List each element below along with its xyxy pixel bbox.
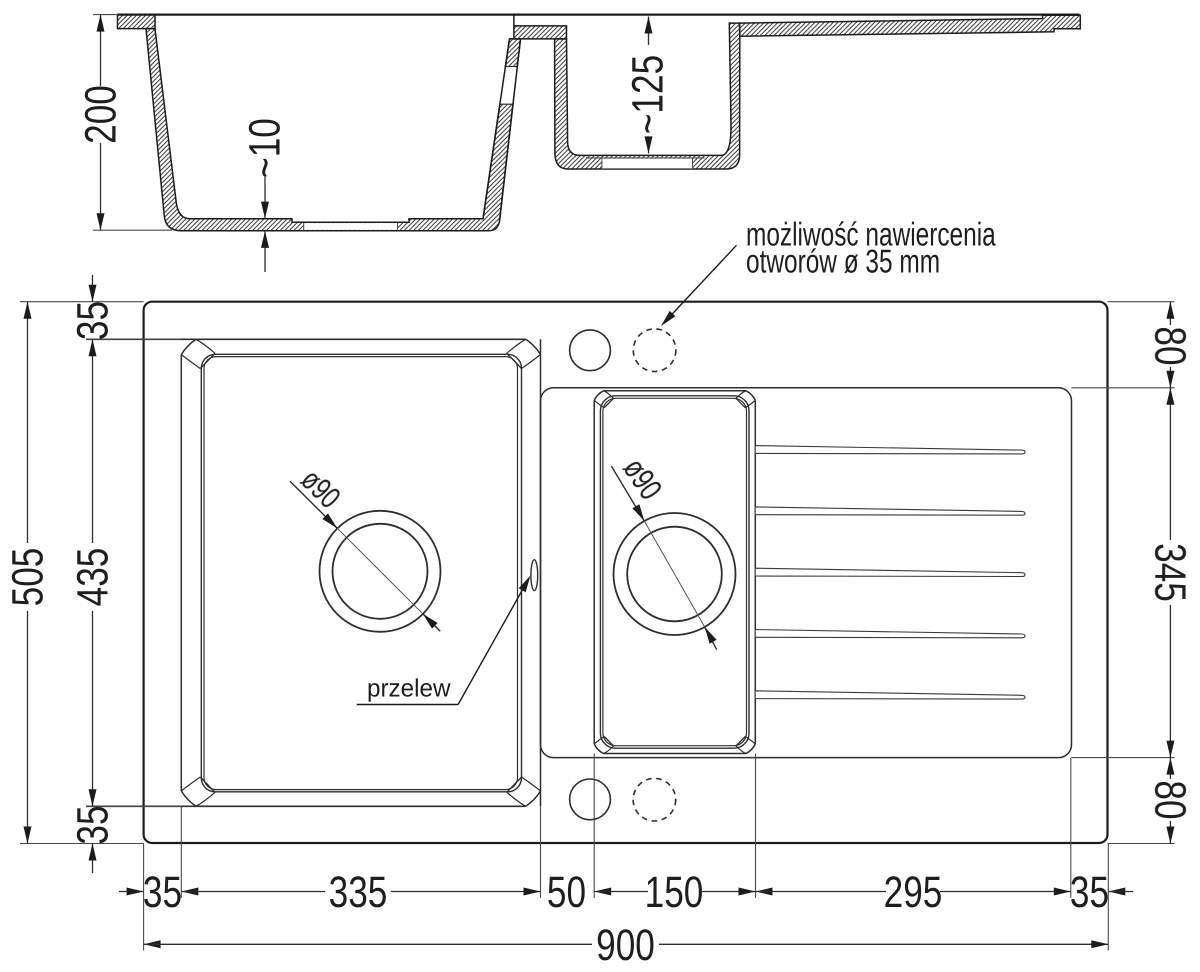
svg-text:~10: ~10 <box>241 118 290 178</box>
svg-text:50: 50 <box>547 868 586 917</box>
svg-text:35: 35 <box>69 301 118 340</box>
svg-text:80: 80 <box>1145 780 1194 819</box>
svg-text:35: 35 <box>1070 868 1109 917</box>
svg-text:345: 345 <box>1145 543 1194 602</box>
svg-text:~125: ~125 <box>624 55 673 134</box>
svg-text:900: 900 <box>596 921 655 970</box>
svg-text:505: 505 <box>4 548 53 607</box>
svg-text:otworów ø 35 mm: otworów ø 35 mm <box>746 243 940 280</box>
svg-text:80: 80 <box>1145 326 1194 365</box>
svg-text:150: 150 <box>645 868 704 917</box>
svg-text:przelew: przelew <box>367 675 451 703</box>
svg-text:200: 200 <box>77 85 126 144</box>
svg-text:35: 35 <box>143 868 182 917</box>
svg-text:35: 35 <box>69 805 118 844</box>
svg-text:295: 295 <box>884 868 943 917</box>
svg-text:435: 435 <box>69 548 118 607</box>
svg-text:335: 335 <box>329 868 388 917</box>
